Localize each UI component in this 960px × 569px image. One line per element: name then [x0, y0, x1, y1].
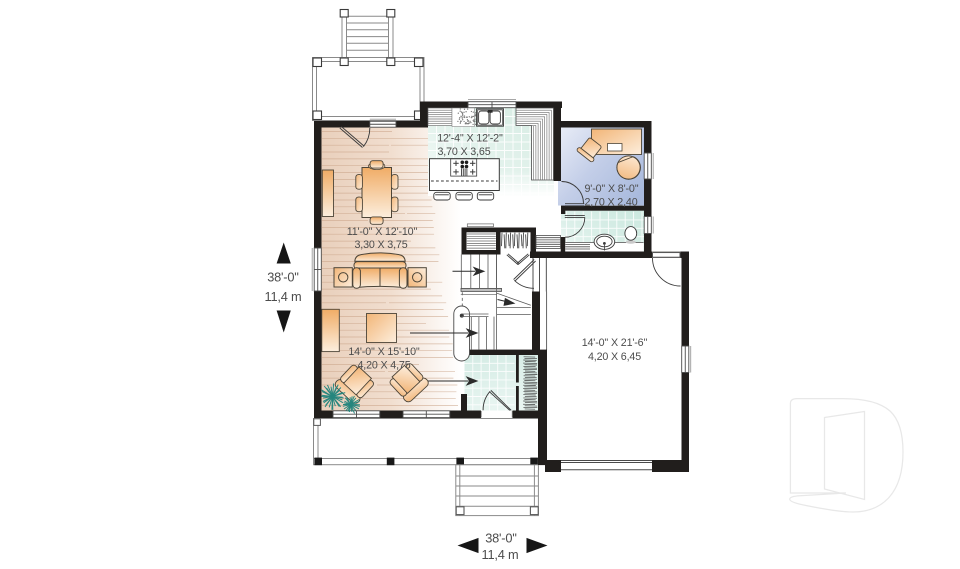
svg-text:11'-0'' X 12'-10'': 11'-0'' X 12'-10''	[347, 226, 418, 238]
svg-text:11,4 m: 11,4 m	[265, 289, 302, 304]
svg-text:11,4 m: 11,4 m	[482, 547, 519, 562]
svg-text:38'-0'': 38'-0''	[485, 531, 517, 546]
svg-text:3,30 X 3,75: 3,30 X 3,75	[354, 239, 407, 251]
svg-text:4,20 X 6,45: 4,20 X 6,45	[588, 351, 641, 363]
svg-text:3,70 X 3,65: 3,70 X 3,65	[437, 146, 490, 158]
svg-text:2,70 X 2,40: 2,70 X 2,40	[584, 197, 637, 209]
svg-text:14'-0'' X 15'-10'': 14'-0'' X 15'-10''	[348, 346, 419, 358]
svg-text:38'-0'': 38'-0''	[267, 270, 299, 285]
svg-text:14'-0'' X 21'-6'': 14'-0'' X 21'-6''	[582, 337, 648, 349]
svg-text:12'-4'' X 12'-2'': 12'-4'' X 12'-2''	[437, 133, 503, 145]
svg-text:9'-0'' X 8'-0'': 9'-0'' X 8'-0''	[585, 183, 639, 195]
svg-text:4,20 X 4,75: 4,20 X 4,75	[357, 360, 410, 372]
